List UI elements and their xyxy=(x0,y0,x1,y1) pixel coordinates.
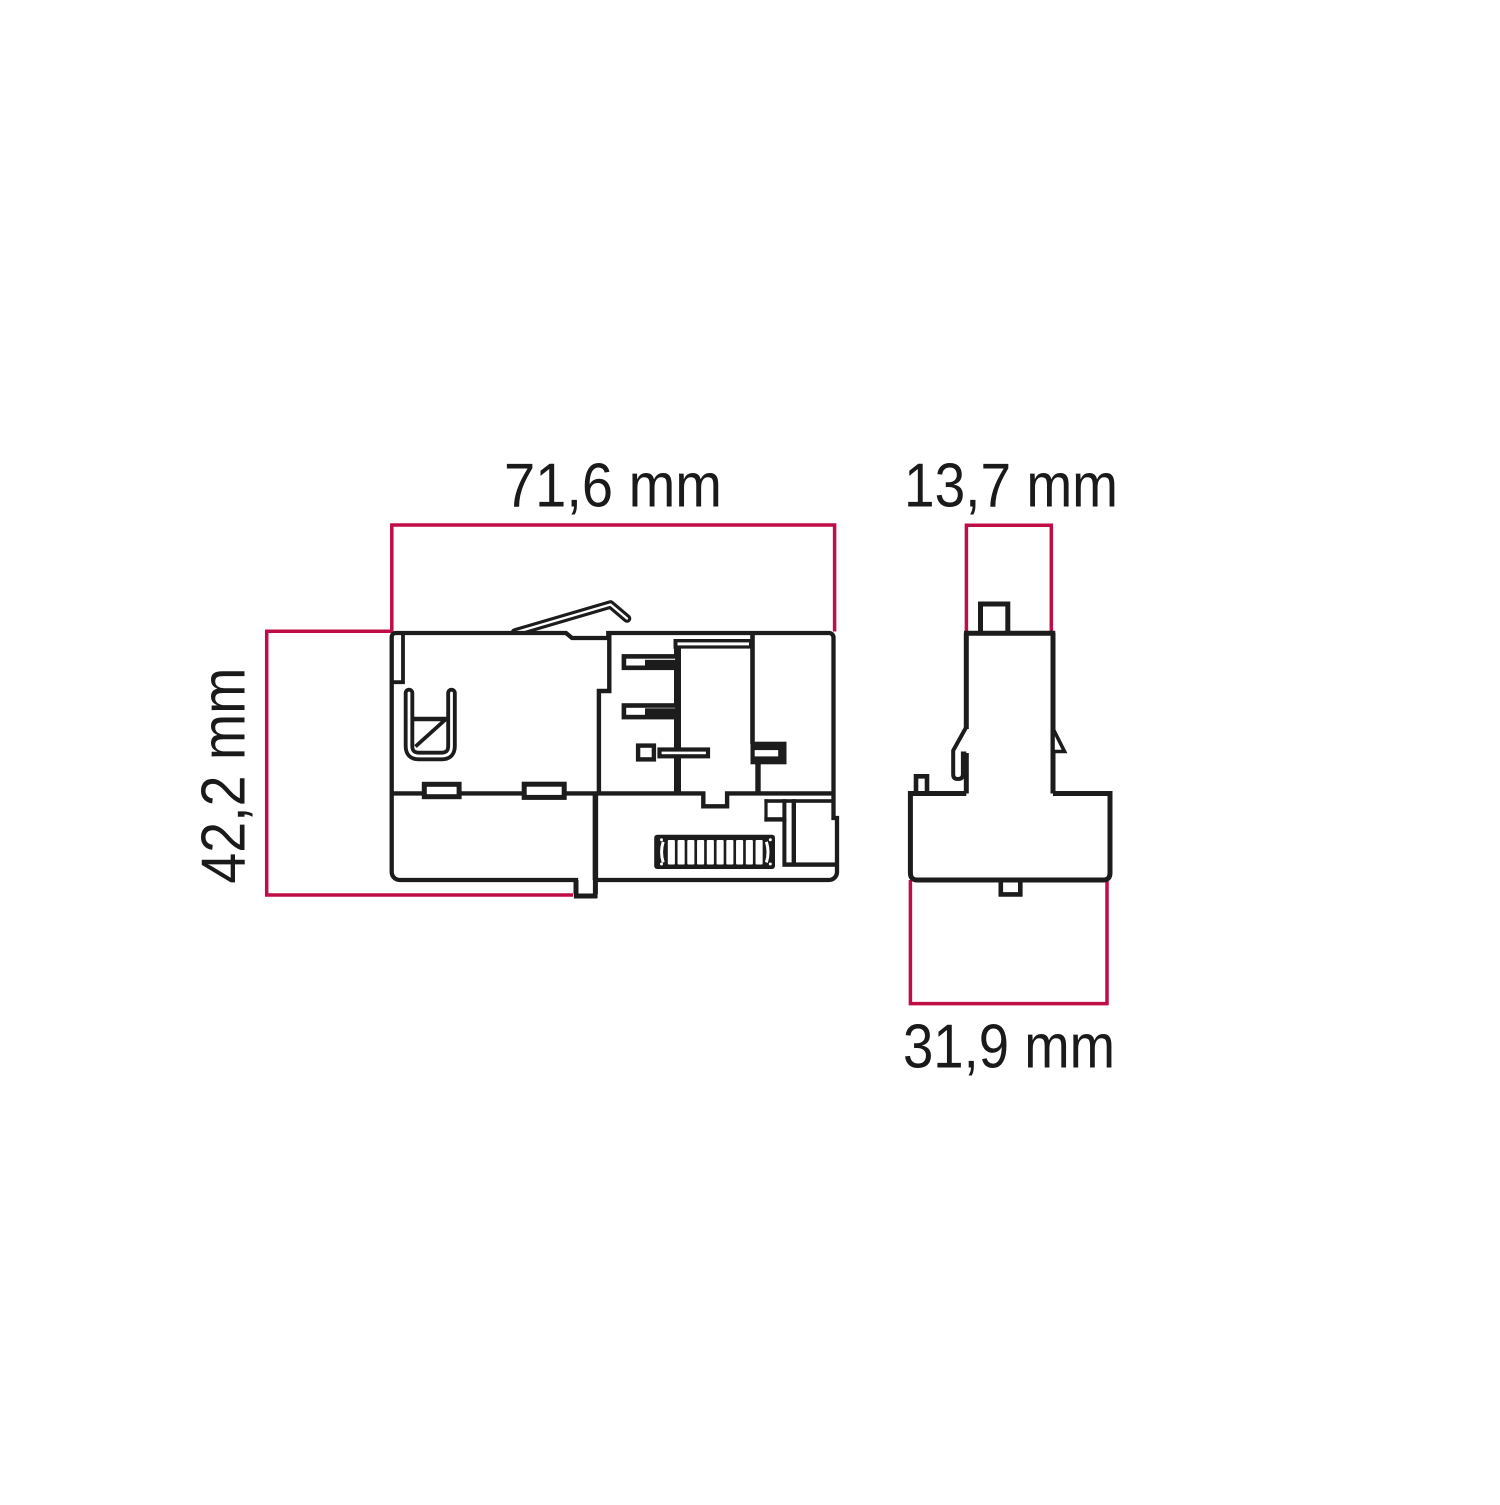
svg-text:13,7 mm: 13,7 mm xyxy=(904,452,1118,521)
svg-text:71,6 mm: 71,6 mm xyxy=(504,452,722,521)
svg-text:42,2 mm: 42,2 mm xyxy=(190,668,259,884)
svg-text:31,9 mm: 31,9 mm xyxy=(903,1013,1115,1082)
